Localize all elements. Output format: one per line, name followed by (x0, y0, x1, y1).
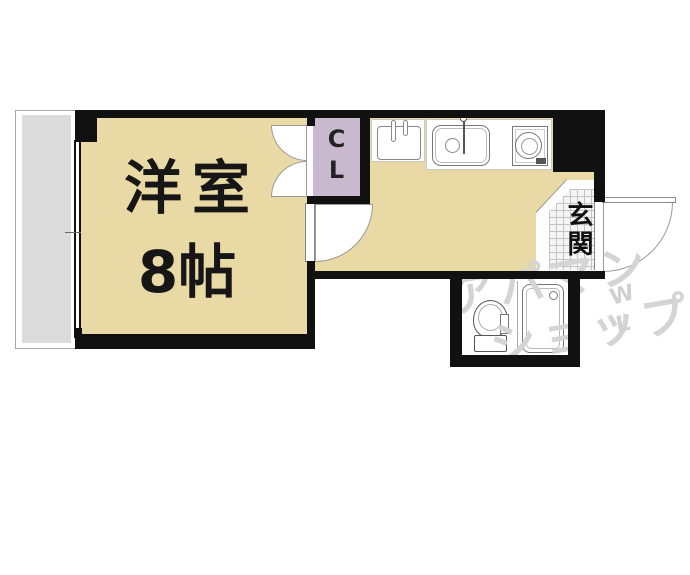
entrance-label: 玄関 (560, 201, 597, 259)
balcony-deck (22, 115, 71, 343)
washer-pan-icon (377, 126, 421, 160)
sink-faucet-icon (463, 118, 465, 154)
stove-burner-inner-icon (521, 138, 538, 155)
washer-tap2-icon (403, 120, 408, 136)
wall-entry-stub (594, 172, 605, 202)
closet-label-line2: L (313, 155, 360, 186)
floor-plan: アパマン ショップ W L 洋室 8帖 C L 玄関 (0, 0, 690, 575)
wall-bath-bottom (450, 355, 580, 367)
kitchen-sink-icon (432, 125, 490, 166)
stove-grill-icon (536, 158, 546, 164)
main-room-name: 洋室 (87, 146, 297, 230)
wall-window-bottom-stub (74, 328, 82, 338)
entrance-door-leaf (602, 197, 676, 203)
wall-room-bottom (75, 334, 315, 349)
closet-label: C L (313, 124, 360, 186)
wall-closet-bottom (307, 196, 370, 204)
wall-top (97, 110, 605, 118)
wall-block-top-right (553, 110, 605, 172)
wall-bath-left (450, 271, 462, 367)
wall-bath-right (568, 271, 580, 367)
main-room-size: 8帖 (77, 230, 297, 314)
wall-corner-top-left (75, 110, 97, 142)
main-room-label: 洋室 8帖 (77, 146, 297, 314)
closet-label-line1: C (313, 124, 360, 155)
washer-tap-icon (391, 120, 396, 142)
room-door-leaf (305, 203, 315, 262)
sink-drain-icon (445, 138, 460, 153)
wall-closet-right (360, 110, 370, 204)
